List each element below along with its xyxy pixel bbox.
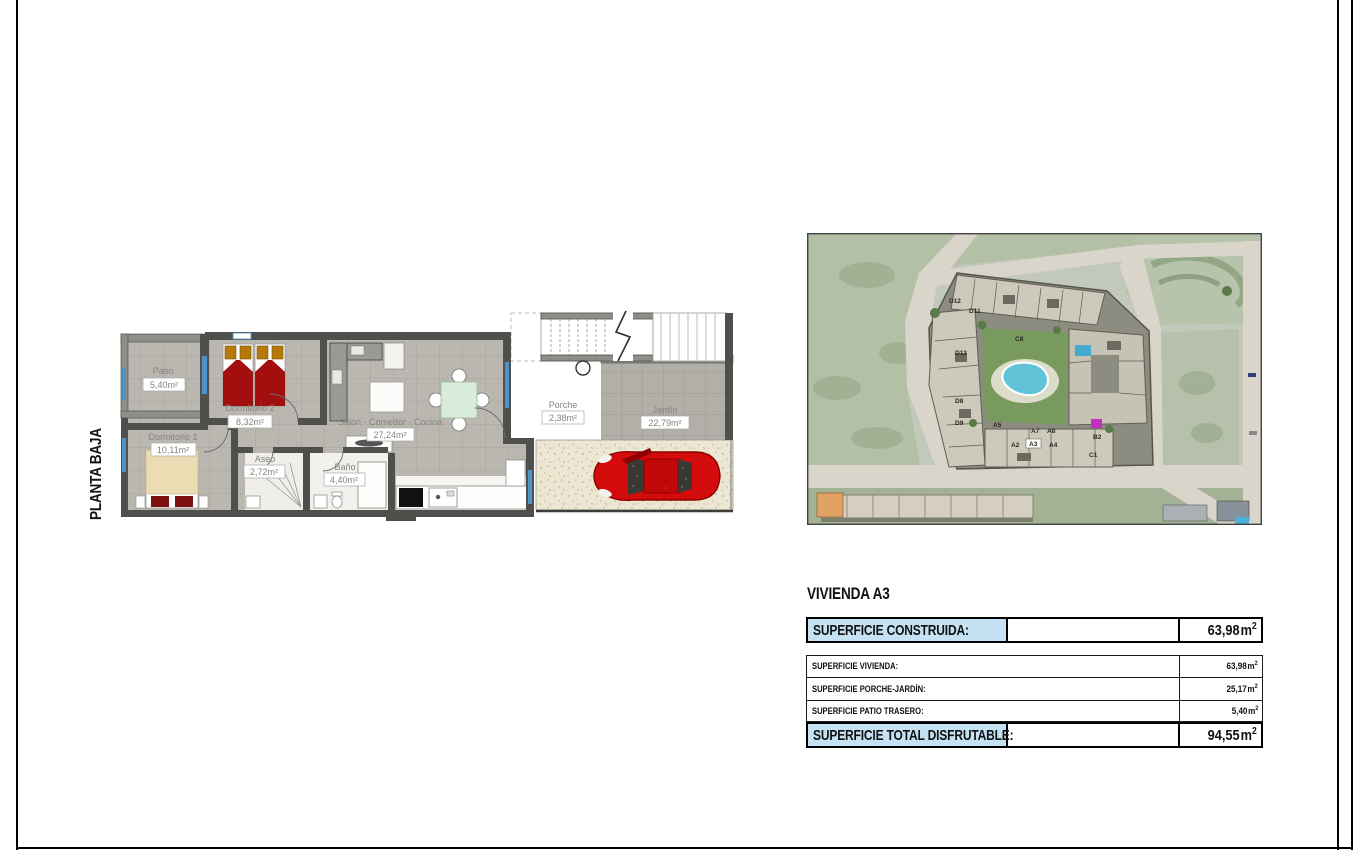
page-frame-right: [1337, 0, 1339, 850]
svg-text:A3: A3: [1029, 441, 1038, 448]
floor-plan-drawing: Patio 5,40m² Dormitorio 2 8,32m² Dormito…: [118, 310, 740, 522]
svg-text:2,72m²: 2,72m²: [250, 467, 278, 477]
row-label: SUPERFICIE VIVIENDA:: [812, 661, 898, 672]
summary-title: VIVIENDA A3: [807, 584, 910, 604]
svg-text:Dormitorio 1: Dormitorio 1: [148, 432, 197, 442]
svg-text:10,11m²: 10,11m²: [157, 445, 189, 455]
svg-text:5,40m²: 5,40m²: [150, 380, 178, 390]
summary-row-patio-trasero: SUPERFICIE PATIO TRASERO: 5,40 m2: [806, 701, 1263, 722]
summary-row-vivienda: SUPERFICIE VIVIENDA: 63,98 m2: [806, 655, 1263, 678]
svg-text:Porche: Porche: [549, 400, 578, 410]
dormitorio1-bed: [136, 450, 208, 508]
svg-text:Baño: Baño: [334, 462, 355, 472]
page-frame-left: [16, 0, 18, 850]
row-spacer-cell: [1008, 619, 1182, 641]
site-map: D12 D11 C8 D13 D8 D9 A5 A2 A7 A3 A8 A4 B…: [807, 233, 1262, 525]
svg-text:A2: A2: [1011, 442, 1020, 449]
svg-text:8,32m²: 8,32m²: [236, 417, 264, 427]
row-label: SUPERFICIE PORCHE-JARDÍN:: [812, 684, 926, 695]
page-frame-bottom: [16, 847, 1353, 849]
svg-text:A8: A8: [1047, 428, 1056, 435]
row-label: SUPERFICIE TOTAL DISFRUTABLE:: [813, 727, 1013, 744]
svg-text:Aseo: Aseo: [255, 454, 276, 464]
plan-sheet: { "floor_plan": { "title": "PLANTA BAJA"…: [0, 0, 1360, 850]
svg-text:Patio: Patio: [153, 366, 174, 376]
car: [594, 448, 720, 500]
svg-text:2,38m²: 2,38m²: [549, 413, 577, 423]
row-label: SUPERFICIE PATIO TRASERO:: [812, 706, 924, 717]
row-value: 63,98 m2: [1208, 621, 1257, 639]
svg-text:C1: C1: [1089, 452, 1098, 459]
summary-row-porche-jardin: SUPERFICIE PORCHE-JARDÍN: 25,17 m2: [806, 678, 1263, 701]
svg-text:D8: D8: [955, 398, 964, 405]
svg-text:C8: C8: [1015, 336, 1024, 343]
svg-text:27,24m²: 27,24m²: [373, 430, 406, 440]
summary-title-text: VIVIENDA A3: [807, 584, 890, 604]
row-value: 63,98 m2: [1227, 660, 1258, 672]
page-frame-right-outer: [1351, 0, 1353, 850]
row-value: 94,55 m2: [1208, 726, 1257, 744]
svg-text:B2: B2: [1093, 434, 1102, 441]
summary-row-construida: SUPERFICIE CONSTRUIDA: 63,98 m2: [806, 617, 1263, 643]
svg-text:Dormitorio 2: Dormitorio 2: [225, 403, 274, 413]
row-spacer-cell: [1008, 724, 1182, 746]
svg-text:D12: D12: [949, 298, 961, 305]
svg-text:Jardín: Jardín: [652, 405, 677, 415]
svg-text:D13: D13: [955, 350, 967, 357]
svg-text:A7: A7: [1031, 428, 1040, 435]
svg-text:A4: A4: [1049, 442, 1058, 449]
svg-text:4,40m²: 4,40m²: [330, 475, 358, 485]
summary-row-total: SUPERFICIE TOTAL DISFRUTABLE: 94,55 m2: [806, 722, 1263, 748]
svg-text:Salón - Comedor - Cocina: Salón - Comedor - Cocina: [338, 417, 442, 427]
row-value: 25,17 m2: [1227, 683, 1258, 695]
svg-text:A5: A5: [993, 422, 1002, 429]
svg-text:D9: D9: [955, 420, 964, 427]
row-value: 5,40 m2: [1231, 705, 1258, 717]
svg-text:D11: D11: [969, 308, 981, 315]
floor-plan-title: PLANTA BAJA: [88, 428, 106, 520]
row-label: SUPERFICIE CONSTRUIDA:: [813, 622, 969, 639]
svg-text:22,79m²: 22,79m²: [648, 418, 681, 428]
